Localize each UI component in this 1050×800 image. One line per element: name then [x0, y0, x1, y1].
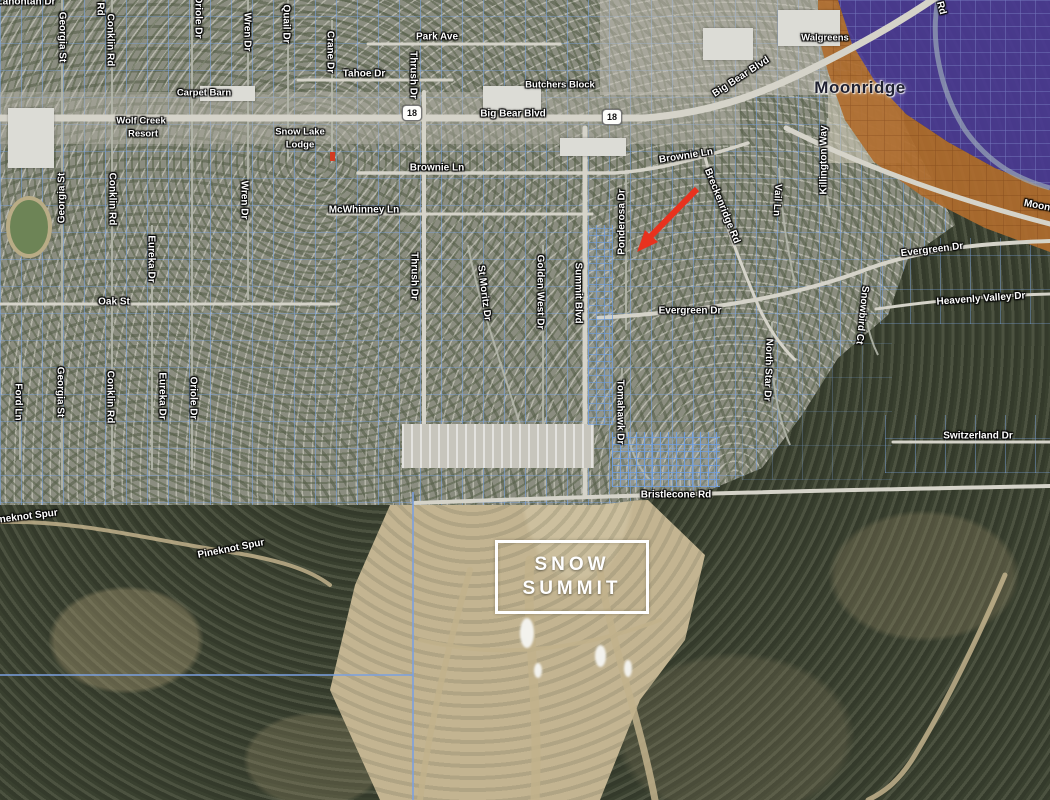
- snow-summit-line2: SUMMIT: [523, 578, 622, 600]
- snow-patch: [534, 663, 542, 678]
- snow-patch: [595, 645, 606, 667]
- parking-lot: [402, 424, 594, 468]
- building: [560, 138, 626, 156]
- highway-18-shield: 18: [602, 109, 622, 125]
- commercial-corridor: [0, 92, 740, 144]
- snow-patch: [624, 660, 632, 677]
- building: [8, 108, 54, 168]
- running-track: [6, 196, 52, 258]
- snow-patch: [520, 618, 534, 648]
- condo-cluster: [612, 432, 720, 487]
- snow-summit-line1: SNOW: [534, 554, 609, 576]
- sparse-parcels: [742, 330, 892, 480]
- building: [200, 86, 255, 101]
- satellite-map-view[interactable]: SNOW SUMMIT Lahontan DrPark AveTahoe DrB…: [0, 0, 1050, 800]
- building: [703, 28, 753, 60]
- highway-18-shield: 18: [402, 105, 422, 121]
- sparse-parcels: [885, 415, 1050, 473]
- moonridge-parking: [828, 95, 904, 163]
- snow-summit-label-box: SNOW SUMMIT: [495, 540, 649, 614]
- condo-strip: [588, 225, 613, 425]
- sparse-parcels: [880, 238, 1050, 324]
- red-marker-icon: [330, 152, 335, 161]
- building: [483, 86, 541, 110]
- walgreens-building: [778, 10, 840, 46]
